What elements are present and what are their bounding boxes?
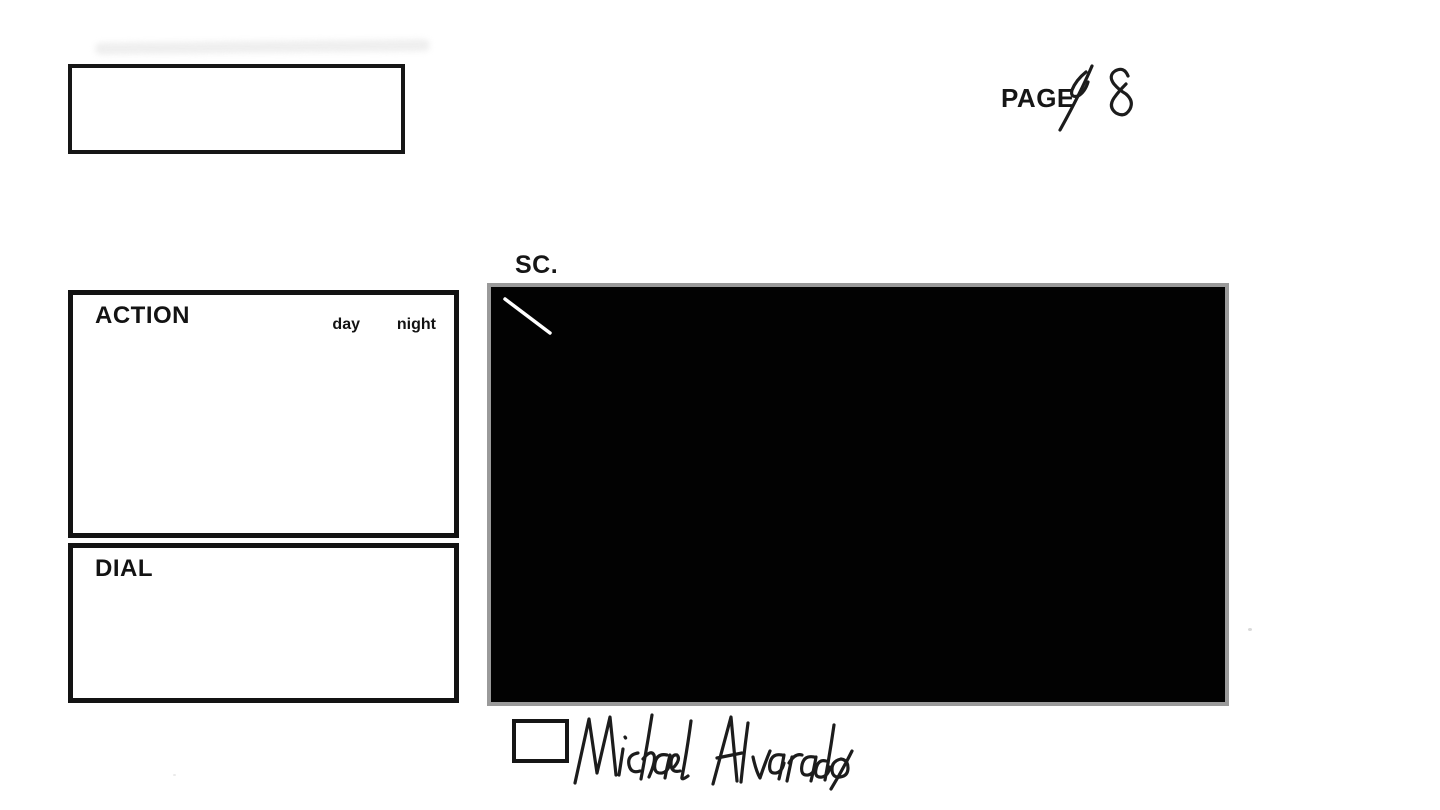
- scene-frame-blackout: [487, 283, 1229, 706]
- storyboard-sheet-page: PAGE SC. ACTION day night DIAL: [0, 0, 1440, 810]
- page-number-handwriting: [1052, 60, 1162, 150]
- action-label: ACTION: [95, 302, 190, 330]
- scan-shadow-smudge: [95, 39, 430, 55]
- scan-speck: [1248, 628, 1252, 631]
- scene-number-label: SC.: [515, 251, 558, 280]
- day-option-label: day: [332, 316, 360, 334]
- night-option-label: night: [397, 316, 436, 334]
- dial-field: DIAL: [68, 543, 459, 703]
- production-title-box: [68, 64, 405, 154]
- action-field: ACTION day night: [68, 290, 459, 538]
- dial-label: DIAL: [95, 555, 153, 583]
- approval-checkbox[interactable]: [512, 719, 569, 763]
- scan-speck: [173, 774, 176, 776]
- signature-handwriting: [563, 697, 863, 797]
- scratch-mark: [505, 299, 550, 333]
